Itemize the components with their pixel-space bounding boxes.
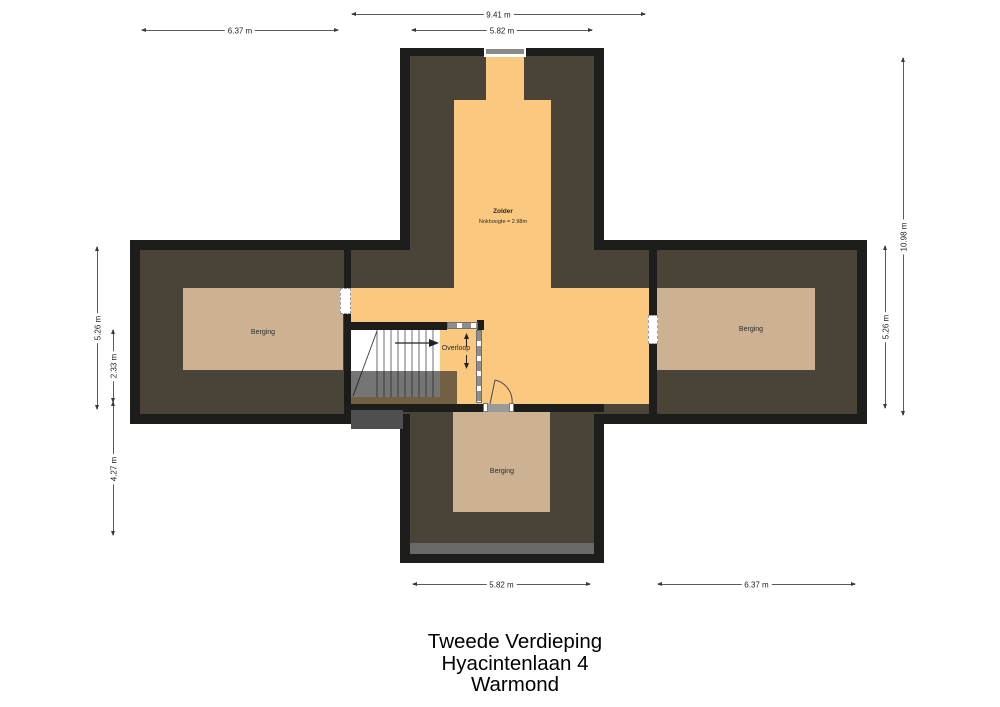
- dimension-left-outer: 5.26 m: [97, 247, 98, 409]
- interior-window-vertical-icon: [476, 330, 482, 403]
- dimension-label: 9.41 m: [483, 10, 513, 19]
- zolder-name: Zolder: [433, 208, 573, 215]
- dimension-label: 2.33 m: [109, 351, 118, 381]
- door-threshold: [487, 404, 510, 412]
- left-wall-opening: [340, 288, 351, 314]
- dimension-label: 10.98 m: [899, 219, 908, 254]
- room-label-berging-left: Berging: [213, 329, 313, 337]
- zolder-floor-top-strip: [486, 56, 524, 102]
- dimension-bottom-right: 6.37 m: [658, 584, 855, 585]
- dimension-label: 6.37 m: [225, 26, 255, 35]
- stair-void-overlay: [344, 371, 457, 404]
- dimension-top-left: 6.37 m: [142, 30, 338, 31]
- dimension-left-inner: 2.33 m: [113, 330, 114, 402]
- top-window-icon: [486, 49, 524, 54]
- dimension-label: 5.82 m: [487, 26, 517, 35]
- dimension-label: 5.26 m: [93, 313, 102, 343]
- interior-window-horizontal-icon: [447, 322, 478, 329]
- bottom-wing-dormer: [410, 543, 594, 554]
- wall-bottom-right-segment: [510, 404, 604, 412]
- floorplan-page: Zolder Nokhoogte = 2.98m Overloop Bergin…: [0, 0, 1000, 707]
- title-block: Tweede Verdieping Hyacintenlaan 4 Warmon…: [365, 631, 665, 696]
- room-label-berging-right: Berging: [701, 326, 801, 334]
- door-swing-icon: [484, 376, 514, 405]
- dimension-label: 5.82 m: [486, 580, 516, 589]
- dimension-left-lower: 4.27 m: [113, 402, 114, 535]
- berging-bottom-floor: [453, 410, 550, 512]
- title-city: Warmond: [365, 674, 665, 696]
- dimension-right-total: 10.98 m: [903, 58, 904, 415]
- door-jamb-right: [509, 403, 514, 412]
- dimension-top-inner: 5.82 m: [412, 30, 592, 31]
- title-address: Hyacintenlaan 4: [365, 653, 665, 675]
- room-label-overloop: Overloop: [421, 345, 491, 353]
- dimension-bottom-inner: 5.82 m: [413, 584, 590, 585]
- zolder-floor-mid-strip: [454, 100, 551, 290]
- dimension-label: 6.37 m: [741, 580, 771, 589]
- arrow-down-icon: [462, 354, 471, 369]
- room-label-zolder: Zolder Nokhoogte = 2.98m: [433, 208, 573, 225]
- right-wall-opening: [648, 315, 658, 344]
- dimension-label: 5.26 m: [881, 312, 890, 342]
- wall-stair-top: [344, 322, 447, 330]
- zolder-ridge-height: Nokhoogte = 2.98m: [433, 219, 573, 225]
- dimension-top-total: 9.41 m: [352, 14, 645, 15]
- under-stairs-gray: [351, 410, 403, 429]
- title-floor: Tweede Verdieping: [365, 631, 665, 653]
- room-label-berging-bottom: Berging: [452, 468, 552, 476]
- door-jamb-left: [483, 403, 488, 412]
- dimension-right-outer: 5.26 m: [885, 246, 886, 408]
- wall-window-stub: [477, 320, 484, 330]
- dimension-label: 4.27 m: [109, 453, 118, 483]
